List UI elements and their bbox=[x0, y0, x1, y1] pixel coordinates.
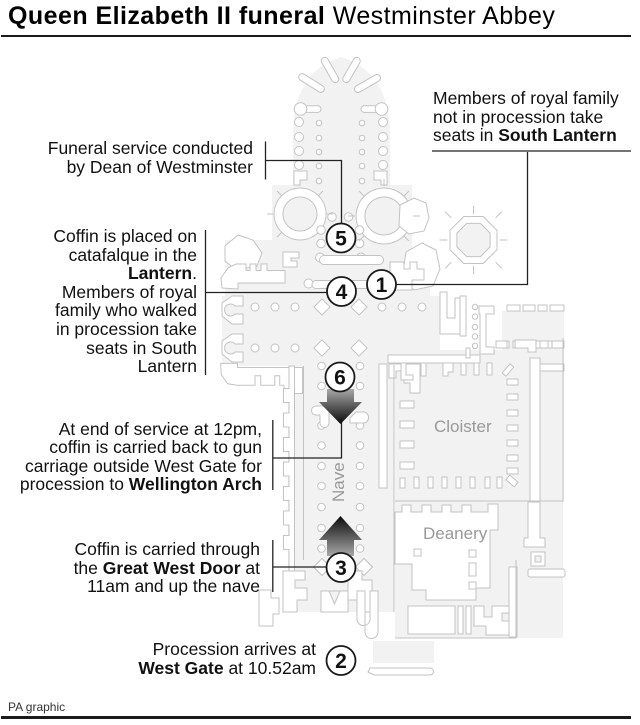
svg-text:4: 4 bbox=[336, 281, 348, 304]
svg-text:1: 1 bbox=[376, 274, 388, 297]
svg-text:3: 3 bbox=[335, 557, 347, 580]
svg-text:5: 5 bbox=[335, 228, 347, 251]
svg-text:Deanery: Deanery bbox=[423, 524, 488, 543]
svg-text:Cloister: Cloister bbox=[434, 417, 492, 436]
svg-text:6: 6 bbox=[334, 367, 346, 390]
svg-text:Nave: Nave bbox=[329, 462, 348, 502]
svg-text:2: 2 bbox=[335, 650, 347, 673]
